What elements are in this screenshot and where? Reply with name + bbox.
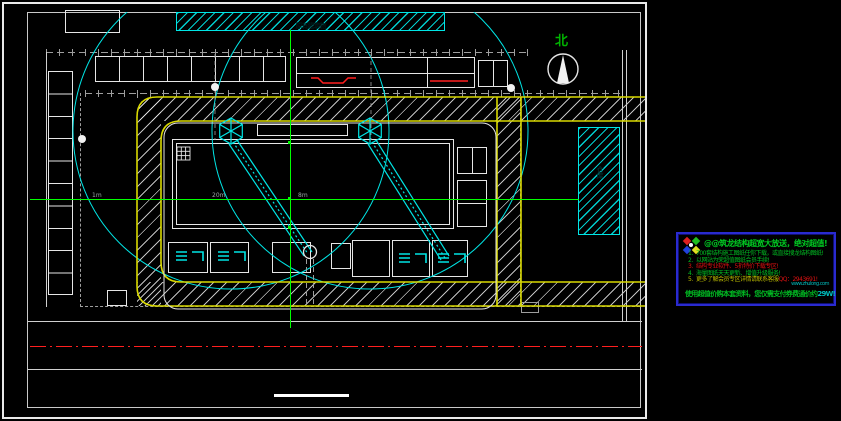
site-facility-1	[168, 242, 208, 273]
boundary-tickline-mid	[85, 90, 620, 97]
axis-horizontal	[30, 199, 579, 200]
ad-url: www.zhulong.com	[791, 281, 829, 287]
gate-house	[107, 290, 127, 306]
axis-vertical	[290, 30, 291, 328]
main-building-inner	[176, 143, 450, 225]
scale-bar	[274, 394, 349, 397]
existing-building-bar: 原有建筑物	[176, 12, 445, 31]
road-band-right	[497, 97, 521, 306]
site-facility-2	[210, 242, 249, 273]
east-street-line-1	[622, 50, 623, 322]
dim-label: 20m	[212, 193, 225, 199]
site-facility-7	[432, 240, 468, 277]
annex-building	[65, 10, 120, 33]
fence-left	[80, 93, 81, 307]
south-road-edge	[28, 369, 642, 370]
fence-bottom	[80, 306, 640, 307]
road-band-left	[137, 97, 161, 306]
cad-canvas[interactable]: 原有建筑物 仓库	[0, 0, 841, 421]
dim-label: 8m	[298, 193, 308, 199]
watermark-ad-box: @@筑龙结构超宽大放送，绝对超值! 1.700套结构施工图纸任你下载，或直接搜龙…	[676, 232, 836, 306]
north-small-room	[478, 60, 508, 87]
dim-label: 1m	[92, 193, 102, 199]
north-annex-strip	[257, 124, 348, 136]
ad-footer-highlight: 29W!	[817, 290, 835, 298]
road-band-top	[137, 97, 645, 121]
ad-item-list: 1.700套结构施工图纸任你下载，或直接搜龙结构图纸! 2.以网站为荣超值图纸会…	[688, 251, 823, 284]
east-annex-2	[457, 180, 487, 227]
ad-title: @@筑龙结构超宽大放送，绝对超值!	[704, 238, 827, 249]
north-label: 北	[555, 35, 568, 48]
fence-right	[520, 93, 521, 307]
existing-building-label: 原有建筑物	[296, 22, 326, 30]
ad-footer: 使用超值价购本套资料，您仅需支付券费通价约29W!	[685, 289, 835, 299]
west-temporary-rooms	[48, 71, 73, 295]
axis-node	[288, 226, 291, 229]
site-facility-3	[272, 242, 311, 273]
storage-area: 仓库	[578, 127, 620, 235]
road-centerline	[30, 346, 642, 347]
south-boundary-line	[28, 321, 642, 322]
road-band-bottom	[137, 282, 645, 306]
boundary-tickline-top	[46, 49, 530, 56]
east-gate-house	[521, 302, 539, 313]
site-facility-5	[352, 240, 390, 277]
north-workshop	[296, 57, 475, 88]
site-facility-4	[331, 243, 351, 269]
axis-node	[288, 197, 291, 200]
axis-node	[288, 141, 291, 144]
east-annex-1	[457, 147, 487, 174]
storage-label: 仓库	[595, 166, 605, 178]
site-edge-left	[46, 52, 47, 307]
site-facility-6	[392, 240, 430, 277]
east-street-line-2	[626, 50, 627, 322]
north-temporary-rooms	[95, 56, 286, 82]
